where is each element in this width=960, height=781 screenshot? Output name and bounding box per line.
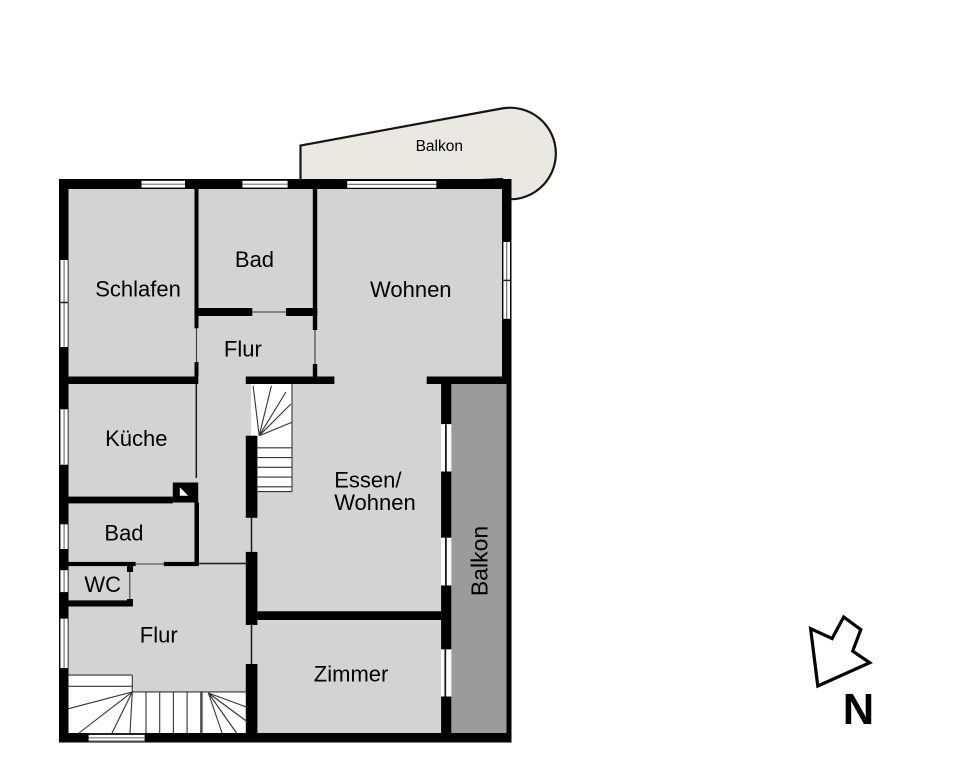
svg-text:Flur: Flur [140,623,178,648]
svg-text:Zimmer: Zimmer [314,661,389,686]
svg-text:Flur: Flur [224,336,262,361]
svg-text:Balkon: Balkon [466,526,492,596]
svg-text:Wohnen: Wohnen [370,277,452,302]
svg-text:Balkon: Balkon [416,138,463,155]
svg-text:Wohnen: Wohnen [334,490,416,515]
svg-text:N: N [843,686,874,734]
svg-text:Küche: Küche [105,426,167,451]
svg-text:Schlafen: Schlafen [95,277,181,302]
svg-text:Essen/: Essen/ [334,468,402,493]
svg-text:WC: WC [84,572,121,597]
svg-text:Bad: Bad [235,247,274,272]
svg-text:Bad: Bad [104,521,143,546]
